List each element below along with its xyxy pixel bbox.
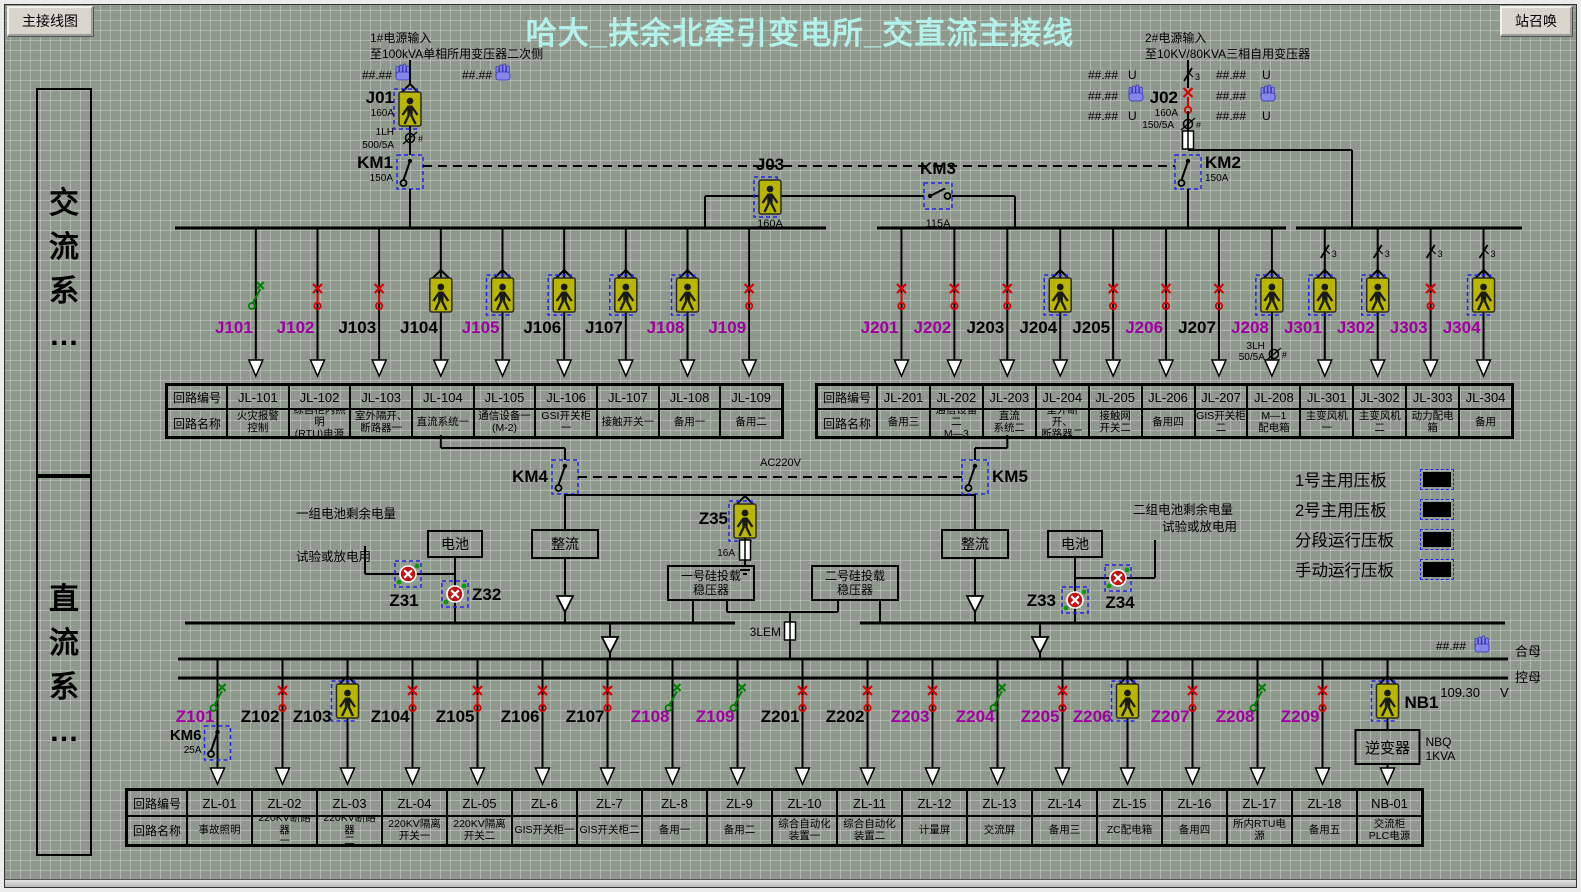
bus-voltage-value: 109.30 (1440, 685, 1480, 700)
feeder-arrow-icon (1381, 768, 1395, 784)
hand-icon[interactable] (1129, 85, 1143, 101)
meter-value: ##.## (1216, 109, 1246, 123)
feeder-arrow-icon (471, 768, 485, 784)
name-header: 回路名称 (167, 409, 227, 437)
cell-code-ZL-15: ZL-15 (1097, 790, 1162, 816)
code-header: 回路编号 (127, 790, 187, 816)
cell-name-JL-302: 主变风机二 (1353, 409, 1406, 437)
circuit-name-line: 控制 (247, 423, 268, 435)
feeder-label-Z105: Z105 (436, 707, 475, 726)
indicator-Z33-label: Z33 (1027, 591, 1056, 610)
circuit-name-line: 综自柜内照明 (290, 409, 350, 429)
feeder-arrow-icon (1106, 360, 1120, 376)
circuit-name-line: ZC配电箱 (1107, 825, 1153, 837)
circuit-name-line: 220KV隔离 (388, 819, 441, 831)
phase-count-label: 3 (1195, 72, 1200, 82)
circuit-name-line: 备用三 (1049, 825, 1081, 837)
feeder-arrow-icon (742, 360, 756, 376)
cell-name-ZL-8: 备用一 (642, 816, 707, 845)
plate-label: 分段运行压板 (1295, 527, 1413, 551)
breaker-J03-label: J03 (756, 155, 784, 174)
label: 1LH (376, 127, 394, 138)
contactor-KM1[interactable] (397, 155, 423, 189)
label: 150/5A (1142, 120, 1174, 131)
circuit-name-line: 开关二 (464, 831, 496, 843)
feeder-label-J205: J205 (1072, 318, 1110, 337)
current-transformer-icon (1181, 118, 1195, 130)
hand-icon[interactable] (1475, 636, 1489, 652)
feeder-arrow-icon (894, 360, 908, 376)
feeder-label-J104: J104 (400, 318, 438, 337)
feeder-arrow-icon (406, 768, 420, 784)
label: 25A (184, 745, 202, 756)
hand-icon[interactable] (496, 64, 510, 80)
battery1-note: 一组电池剩余电量 (296, 506, 396, 521)
cell-code-ZL-18: ZL-18 (1292, 790, 1357, 816)
breaker-J208[interactable] (1256, 270, 1283, 315)
meter-value: ##.## (1088, 89, 1118, 103)
feeder-arrow-icon (1159, 360, 1173, 376)
circuit-name-line: 断路器二 (1041, 429, 1083, 437)
circuit-name-line: 二 (1216, 423, 1227, 435)
feeder-label-NB1: NB1 (1405, 693, 1439, 712)
feeder-label-J304: J304 (1443, 318, 1481, 337)
feeder-label-Z103: Z103 (293, 707, 332, 726)
contactor-KM6-label: KM6 (170, 727, 202, 744)
source1-title: 1#电源输入 (370, 30, 431, 45)
sidebar-char: … (49, 710, 79, 754)
cell-name-ZL-01: 事故照明 (187, 816, 252, 845)
circuit-name-line: 综合自动化 (843, 819, 896, 831)
circuit-name-line: 220KV断路器 (253, 816, 316, 836)
closing-bus-label: 合母 (1515, 644, 1541, 659)
feeder-arrow-icon (311, 360, 325, 376)
feeder-label-Z101: Z101 (176, 707, 215, 726)
cell-code-ZL-8: ZL-8 (642, 790, 707, 816)
cell-code-JL-202: JL-202 (930, 385, 983, 409)
circuit-name-line: 主变风机二 (1354, 411, 1405, 435)
cell-name-ZL-02: 220KV断路器一 (252, 816, 317, 845)
cell-name-JL-109: 备用二 (720, 409, 782, 437)
feeder-arrow-icon (1251, 768, 1265, 784)
feeder-label-Z102: Z102 (241, 707, 280, 726)
code-header: 回路编号 (817, 385, 877, 409)
cell-name-ZL-6: GIS开关柜一 (512, 816, 577, 845)
sidebar-char: … (49, 314, 79, 358)
breaker-J02[interactable] (1184, 88, 1193, 113)
circuit-name-line: 计量屏 (919, 825, 951, 837)
breaker-J108[interactable] (672, 270, 699, 315)
circuit-name-line: 备用二 (735, 417, 767, 429)
diode-icon (557, 596, 573, 612)
pressure-plate-row: 分段运行压板 (1295, 524, 1451, 554)
cell-name-ZL-10: 综合自动化装置一 (772, 816, 837, 845)
cell-name-ZL-11: 综合自动化装置二 (837, 816, 902, 845)
feeder-arrow-icon (601, 768, 615, 784)
feeder-label-J201: J201 (861, 318, 899, 337)
circuit-name-line: 接触开关一 (602, 417, 655, 429)
battery2-note: 二组电池剩余电量 (1133, 502, 1233, 517)
label: 150A (370, 173, 394, 184)
cell-name-JL-301: 主变风机一 (1300, 409, 1353, 437)
feeder-label-Z202: Z202 (826, 707, 865, 726)
feeder-arrow-icon (947, 360, 961, 376)
circuit-name-line: 交流柜 (1374, 819, 1406, 831)
circuit-name-line: 系统二 (994, 423, 1026, 435)
feeder-label-J206: J206 (1125, 318, 1163, 337)
feeder-label-J105: J105 (462, 318, 500, 337)
circuit-name-line: M—3 (944, 429, 969, 437)
label: 115A (926, 218, 952, 230)
cell-code-NB-01: NB-01 (1357, 790, 1422, 816)
cell-code-ZL-01: ZL-01 (187, 790, 252, 816)
current-transformer-icon (403, 132, 417, 144)
cell-name-JL-303: 动力配电箱 (1406, 409, 1459, 437)
contactor-KM3-label: KM3 (920, 159, 956, 178)
feeder-arrow-icon (1000, 360, 1014, 376)
feeder-arrow-icon (991, 768, 1005, 784)
circuit-name-line: 备用二 (724, 825, 756, 837)
phase-count-label: 3 (1332, 249, 1337, 259)
cell-code-ZL-10: ZL-10 (772, 790, 837, 816)
meter-value: ##.## (362, 68, 392, 82)
feeder-label-J108: J108 (647, 318, 685, 337)
feeder-arrow-icon (1186, 768, 1200, 784)
cell-name-JL-104: 直流系统一 (412, 409, 474, 437)
circuit-name-line: GIS开关柜一 (514, 825, 574, 837)
feeder-label-Z205: Z205 (1021, 707, 1060, 726)
circuit-name-line: 动力配电箱 (1407, 411, 1458, 435)
feeder-arrow-icon (1265, 360, 1279, 376)
cell-code-ZL-05: ZL-05 (447, 790, 512, 816)
source2-title: 2#电源输入 (1145, 30, 1206, 45)
breaker-J106[interactable] (548, 270, 575, 315)
label: U (1262, 68, 1271, 82)
circuit-name-line: GIS开关柜二 (579, 825, 639, 837)
ac-right-circuit-table: 回路编号JL-201JL-202JL-203JL-204JL-205JL-206… (815, 383, 1514, 439)
feeder-label-Z109: Z109 (696, 707, 735, 726)
contactor-KM2-label: KM2 (1205, 153, 1241, 172)
cell-name-ZL-9: 备用二 (707, 816, 772, 845)
feeder-label-J208: J208 (1231, 318, 1269, 337)
feeder-label-J204: J204 (1019, 318, 1057, 337)
regulator2-label: 稳压器 (837, 582, 873, 597)
contactor-KM4[interactable] (552, 460, 578, 494)
cell-code-ZL-9: ZL-9 (707, 790, 772, 816)
feeder-label-Z203: Z203 (891, 707, 930, 726)
circuit-name-line: 装置二 (854, 831, 886, 843)
sidebar-char: 系 (49, 666, 79, 710)
label: 160A (1155, 108, 1179, 119)
circuit-name-line: 开关二 (1099, 423, 1131, 435)
breaker-Z103[interactable] (332, 676, 359, 721)
rectifier-label: 整流 (551, 536, 579, 552)
feeder-arrow-icon (496, 360, 510, 376)
circuit-name-line: 通信设备二 (931, 409, 982, 429)
meter-value: ##.## (1216, 89, 1246, 103)
label: U (1128, 68, 1137, 82)
cell-code-JL-108: JL-108 (659, 385, 721, 409)
regulator2-label: 二号硅投载 (825, 568, 885, 583)
feeder-label-J101: J101 (215, 318, 253, 337)
contactor-KM5-label: KM5 (992, 467, 1028, 486)
breaker-J302[interactable] (1362, 270, 1389, 315)
feeder-label-J107: J107 (585, 318, 623, 337)
cell-code-JL-103: JL-103 (350, 385, 412, 409)
phase-count-label: 3 (1491, 249, 1496, 259)
label: 160A (757, 218, 783, 230)
cell-code-ZL-13: ZL-13 (967, 790, 1032, 816)
ac-left-circuit-table: 回路编号JL-101JL-102JL-103JL-104JL-105JL-106… (165, 383, 784, 439)
bus-voltage-unit: V (1500, 685, 1509, 700)
feeder-label-Z209: Z209 (1281, 707, 1320, 726)
feeder-label-Z206: Z206 (1073, 707, 1112, 726)
meter-value: ##.## (1088, 68, 1118, 82)
pressure-plate-row: 手动运行压板 (1295, 554, 1451, 584)
circuit-name-line: GSI开关柜一 (536, 411, 596, 435)
circuit-name-line: 220KV断路器 (318, 816, 381, 836)
cell-code-JL-303: JL-303 (1406, 385, 1459, 409)
cell-name-ZL-03: 220KV断路器二 (317, 816, 382, 845)
hand-icon[interactable] (396, 64, 410, 80)
indicator-Z32-label: Z32 (472, 585, 501, 604)
circuit-name-line: (RTU)电源 (295, 429, 344, 437)
breaker-NB1[interactable] (1372, 676, 1399, 721)
sidebar-char: 流 (49, 226, 79, 270)
contactor-KM5[interactable] (962, 460, 988, 494)
cell-code-ZL-16: ZL-16 (1162, 790, 1227, 816)
cell-code-JL-304: JL-304 (1459, 385, 1512, 409)
cell-name-JL-101: 火灾报警控制 (227, 409, 289, 437)
feeder-label-J106: J106 (523, 318, 561, 337)
label: U (1262, 109, 1271, 123)
cell-code-JL-206: JL-206 (1142, 385, 1195, 409)
feeder-arrow-icon (1053, 360, 1067, 376)
feeder-label-Z204: Z204 (956, 707, 995, 726)
circuit-name-line: 综合自动化 (778, 819, 831, 831)
circuit-name-line: 所内RTU电源 (1228, 819, 1291, 843)
feeder-label-J202: J202 (914, 318, 952, 337)
station-call-button[interactable]: 站召唤 (1500, 6, 1572, 36)
label: 50/5A (1239, 352, 1265, 363)
feeder-arrow-icon (434, 360, 448, 376)
feeder-arrow-icon (1318, 360, 1332, 376)
feeder-arrow-icon (249, 360, 263, 376)
phase-count-label: 3 (1438, 249, 1443, 259)
circuit-name-line: 备用一 (659, 825, 691, 837)
control-bus-label: 控母 (1515, 670, 1541, 685)
feeder-arrow-icon (731, 768, 745, 784)
scada-screen: 主接线图 站召唤 哈大_扶余北牵引变电所_交直流主接线 交流系… 直流系… 1#… (0, 0, 1581, 892)
window-bottom-bar (0, 879, 1581, 892)
feeder-label-Z208: Z208 (1216, 707, 1255, 726)
fuse-icon (1183, 131, 1194, 149)
breaker-J107[interactable] (610, 270, 637, 315)
plate-indicator[interactable] (1423, 532, 1451, 547)
dc-system-label-box: 直流系… (36, 476, 92, 856)
cell-name-JL-107: 接触开关一 (597, 409, 659, 437)
cell-code-ZL-12: ZL-12 (902, 790, 967, 816)
dc-circuit-table: 回路编号ZL-01ZL-02ZL-03ZL-04ZL-05ZL-6ZL-7ZL-… (125, 788, 1424, 847)
label: 16A (717, 548, 735, 559)
circuit-name-line: 装置一 (789, 831, 821, 843)
feeder-label-J103: J103 (338, 318, 376, 337)
feeder-label-J203: J203 (966, 318, 1004, 337)
circuit-name-line: 一 (279, 836, 290, 845)
feeder-arrow-icon (796, 768, 810, 784)
circuit-name-line: 备用五 (1309, 825, 1341, 837)
label: NBQ (1426, 735, 1452, 749)
cell-name-ZL-12: 计量屏 (902, 816, 967, 845)
cell-code-JL-207: JL-207 (1195, 385, 1248, 409)
source1-subtitle: 至100kVA单相所用变压器二次侧 (370, 46, 543, 61)
circuit-name-line: 220KV隔离 (453, 819, 506, 831)
sidebar-char: 交 (49, 182, 79, 226)
cell-code-ZL-11: ZL-11 (837, 790, 902, 816)
circuit-name-line: 备用四 (1179, 825, 1211, 837)
cell-name-ZL-14: 备用三 (1032, 816, 1097, 845)
feeder-arrow-icon (666, 768, 680, 784)
circuit-name-line: 室外断开、 (1037, 409, 1088, 429)
circuit-name-line: 交流屏 (984, 825, 1016, 837)
cell-name-JL-102: 综自柜内照明(RTU)电源 (289, 409, 351, 437)
plate-label: 2号主用压板 (1295, 497, 1413, 521)
cell-name-ZL-05: 220KV隔离开关二 (447, 816, 512, 845)
label: 1KVA (1426, 749, 1456, 763)
battery-label: 电池 (1061, 536, 1089, 552)
breaker-J304[interactable] (1468, 270, 1495, 315)
lem-label: 3LEM (750, 625, 781, 639)
pressure-plate-row: 1号主用压板 (1295, 464, 1451, 494)
diode-icon (1032, 637, 1048, 653)
contactor-KM3[interactable] (924, 183, 952, 209)
circuit-name-line: 配电箱 (1258, 423, 1290, 435)
feeder-label-Z106: Z106 (501, 707, 540, 726)
feeder-label-J207: J207 (1178, 318, 1216, 337)
cell-name-JL-304: 备用 (1459, 409, 1512, 437)
feeder-arrow-icon (1371, 360, 1385, 376)
feeder-label-Z201: Z201 (761, 707, 800, 726)
contactor-KM1-label: KM1 (357, 153, 393, 172)
wiring-diagram: 1#电源输入至100kVA单相所用变压器二次侧##.####.##J01160A… (0, 0, 1581, 892)
main-wiring-button[interactable]: 主接线图 (7, 6, 93, 36)
breaker-Z206[interactable] (1112, 676, 1139, 721)
cell-code-ZL-14: ZL-14 (1032, 790, 1097, 816)
feeder-arrow-icon (372, 360, 386, 376)
feeder-label-J302: J302 (1337, 318, 1375, 337)
sidebar-char: 直 (49, 578, 79, 622)
circuit-name-line: (M-2) (492, 423, 517, 435)
plate-label: 手动运行压板 (1295, 557, 1413, 581)
meter-value: ##.## (1436, 639, 1466, 653)
ac-system-label-box: 交流系… (36, 88, 92, 476)
sidebar-char: 系 (49, 270, 79, 314)
cell-code-JL-105: JL-105 (474, 385, 536, 409)
cell-name-NB-01: 交流柜PLC电源 (1357, 816, 1422, 845)
cell-name-JL-205: 接触网开关二 (1089, 409, 1142, 437)
cell-code-JL-104: JL-104 (412, 385, 474, 409)
contactor-KM2[interactable] (1175, 155, 1201, 189)
cell-name-JL-204: 室外断开、断路器二 (1036, 409, 1089, 437)
cell-code-ZL-7: ZL-7 (577, 790, 642, 816)
indicator-Z31-label: Z31 (389, 591, 418, 610)
feeder-label-Z108: Z108 (631, 707, 670, 726)
cell-name-ZL-17: 所内RTU电源 (1227, 816, 1292, 845)
cell-name-JL-203: 直流系统二 (983, 409, 1036, 437)
circuit-name-line: PLC电源 (1369, 831, 1410, 843)
feeder-label-Z104: Z104 (371, 707, 410, 726)
feeder-arrow-icon (536, 768, 550, 784)
breaker-J105[interactable] (487, 270, 514, 315)
feeder-arrow-icon (276, 768, 290, 784)
plate-indicator[interactable] (1423, 502, 1451, 517)
feeder-arrow-icon (1477, 360, 1491, 376)
cell-name-JL-108: 备用一 (659, 409, 721, 437)
battery-label: 电池 (441, 536, 469, 552)
breaker-J01-label: J01 (366, 88, 394, 107)
cell-code-ZL-17: ZL-17 (1227, 790, 1292, 816)
meter-value: ##.## (1216, 68, 1246, 82)
pressure-plate-row: 2号主用压板 (1295, 494, 1451, 524)
label: 3LH (1247, 341, 1265, 352)
name-header: 回路名称 (127, 816, 187, 845)
feeder-arrow-icon (1424, 360, 1438, 376)
cell-code-JL-109: JL-109 (720, 385, 782, 409)
feeder-arrow-icon (211, 768, 225, 784)
breaker-J301[interactable] (1309, 270, 1336, 315)
cell-code-JL-301: JL-301 (1300, 385, 1353, 409)
cell-name-JL-208: M—1配电箱 (1247, 409, 1300, 437)
cell-name-JL-103: 室外隔开、断路器一 (350, 409, 412, 437)
label: 160A (371, 108, 395, 119)
circuit-name-line: 事故照明 (199, 825, 241, 837)
code-header: 回路编号 (167, 385, 227, 409)
feeder-arrow-icon (1121, 768, 1135, 784)
hand-icon[interactable] (1261, 85, 1275, 101)
circuit-name-line: 备用四 (1152, 417, 1184, 429)
cell-code-JL-203: JL-203 (983, 385, 1036, 409)
circuit-name-line: 主变风机一 (1301, 411, 1352, 435)
cell-code-ZL-04: ZL-04 (382, 790, 447, 816)
plate-indicator[interactable] (1423, 472, 1451, 487)
breaker-J204[interactable] (1044, 270, 1071, 315)
feeder-arrow-icon (619, 360, 633, 376)
cell-code-JL-201: JL-201 (877, 385, 930, 409)
cell-name-JL-105: 通信设备一(M-2) (474, 409, 536, 437)
label: U (1128, 109, 1137, 123)
ct-mark: # (1282, 350, 1287, 360)
cell-code-JL-204: JL-204 (1036, 385, 1089, 409)
cell-name-ZL-7: GIS开关柜二 (577, 816, 642, 845)
breaker-J01[interactable] (394, 84, 421, 129)
feeder-arrow-icon (341, 768, 355, 784)
circuit-name-line: 二 (344, 836, 355, 845)
feeder-label-Z207: Z207 (1151, 707, 1190, 726)
circuit-name-line: 断路器一 (360, 423, 402, 435)
feeder-arrow-icon (1056, 768, 1070, 784)
circuit-name-line: 备用 (1475, 417, 1496, 429)
meter-value: ##.## (1088, 109, 1118, 123)
breaker-J02-label: J02 (1150, 88, 1178, 107)
cell-name-JL-106: GSI开关柜一 (535, 409, 597, 437)
breaker-Z35[interactable] (729, 496, 756, 541)
pressure-plate-list: 1号主用压板2号主用压板分段运行压板手动运行压板 (1295, 464, 1451, 584)
cell-code-JL-208: JL-208 (1247, 385, 1300, 409)
plate-indicator[interactable] (1423, 562, 1451, 577)
feeder-label-Z107: Z107 (566, 707, 605, 726)
cell-code-ZL-6: ZL-6 (512, 790, 577, 816)
ct-mark: # (1196, 120, 1201, 130)
